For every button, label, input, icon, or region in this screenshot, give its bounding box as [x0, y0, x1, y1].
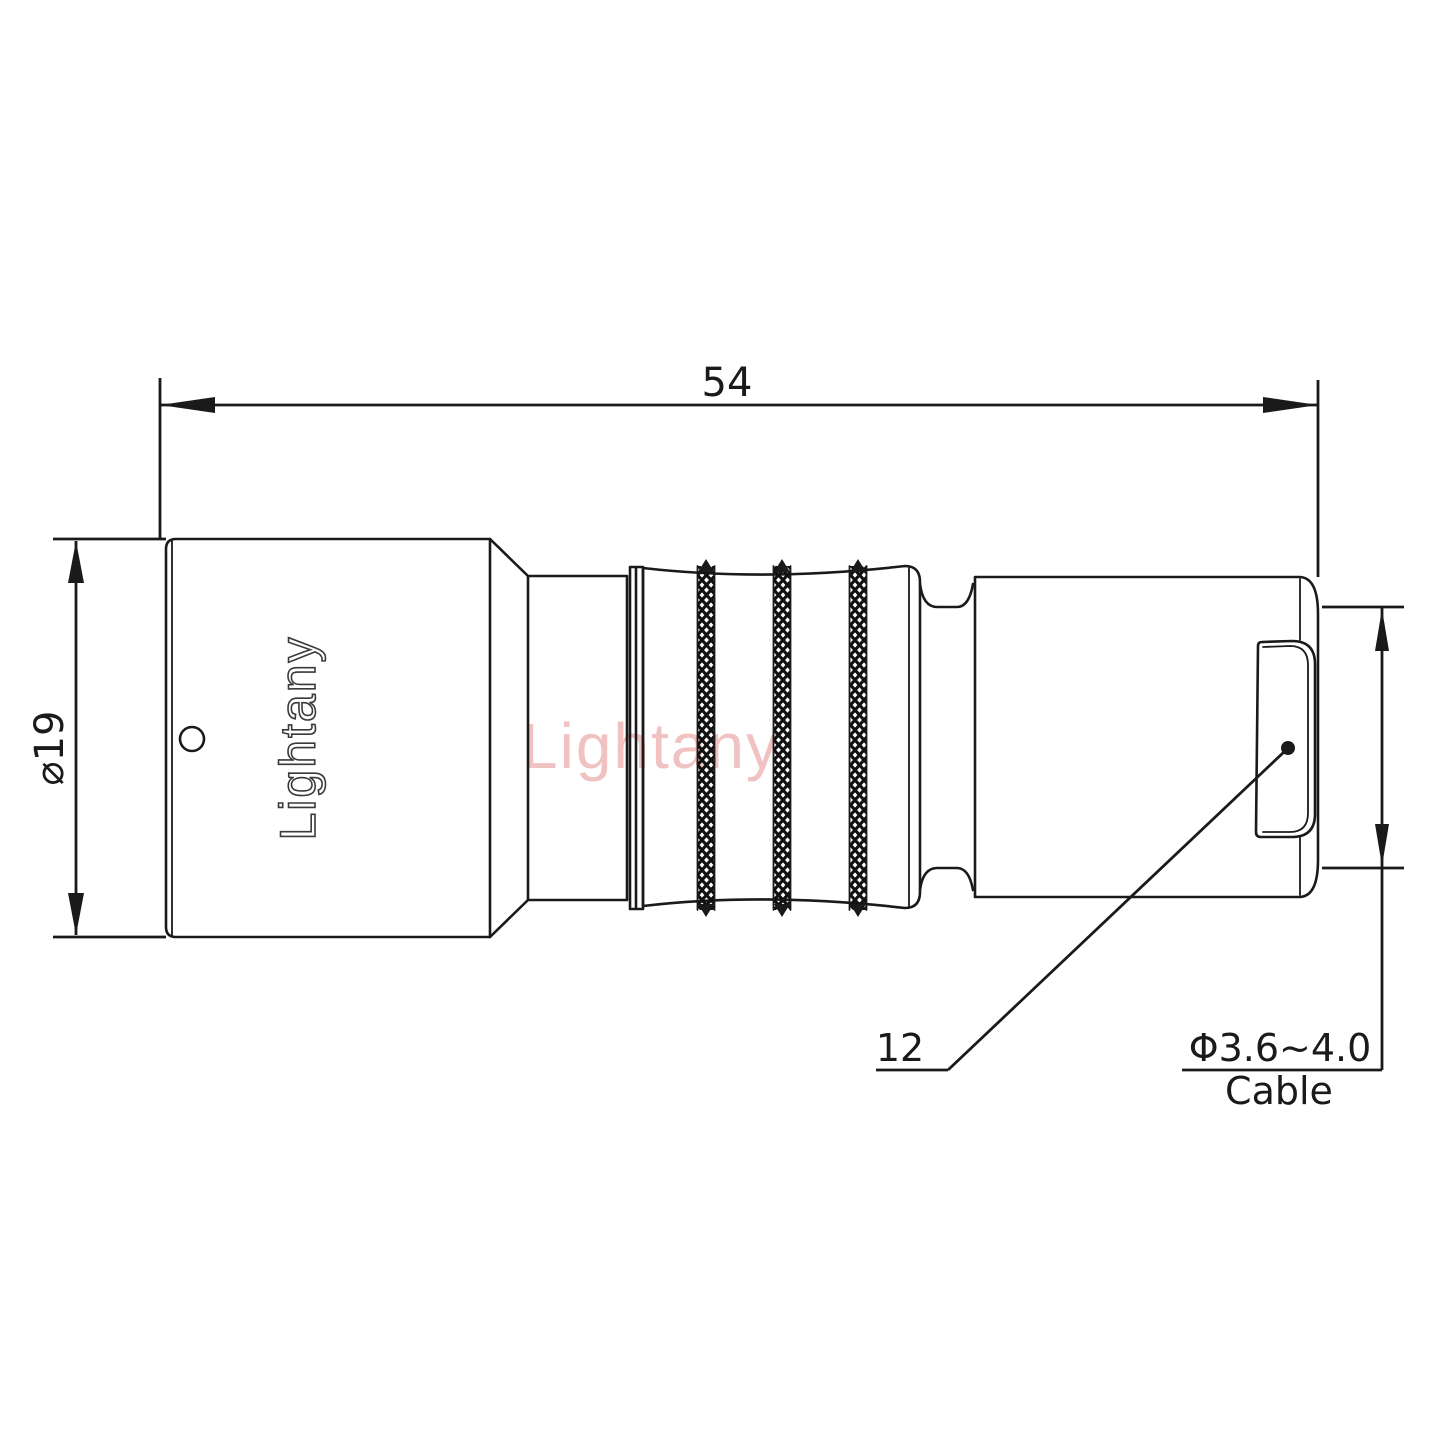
front-shell: [166, 539, 490, 937]
arrow-down-icon: [1375, 824, 1389, 866]
knurl-band-2: [774, 559, 791, 917]
brand-watermark: Lightany: [522, 710, 780, 782]
rear-ref-value: 12: [876, 1026, 924, 1070]
dimension-cable-entry: Φ3.6~4.0 Cable: [1182, 607, 1404, 1113]
shell-hole: [180, 727, 204, 751]
arrow-up-icon: [68, 541, 84, 583]
cable-bushing-inner: [1263, 646, 1308, 832]
dimension-overall-length: 54: [160, 360, 1318, 577]
body-logo-text: Lightany: [270, 635, 326, 840]
dimension-front-diameter: ⌀19: [27, 539, 166, 937]
arrow-down-icon: [68, 893, 84, 935]
cable-bushing-outer: [1256, 641, 1315, 837]
leader-dot: [1281, 741, 1295, 755]
arrow-right-icon: [1263, 397, 1318, 413]
arrow-left-icon: [160, 397, 215, 413]
arrow-up-icon: [1375, 609, 1389, 651]
technical-drawing-page: Lightany: [0, 0, 1440, 1440]
knurl-band-1: [698, 559, 715, 917]
leader-rear-ref: 12: [876, 741, 1295, 1070]
overall-length-value: 54: [702, 360, 753, 406]
rear-body: [975, 577, 1318, 897]
knurl-band-3: [850, 559, 867, 917]
front-diameter-value: ⌀19: [27, 711, 73, 786]
connector-drawing-svg: Lightany: [0, 0, 1440, 1440]
cable-range-value: Φ3.6~4.0: [1189, 1026, 1372, 1070]
neck-groove: [920, 584, 973, 890]
cable-label: Cable: [1225, 1069, 1333, 1113]
